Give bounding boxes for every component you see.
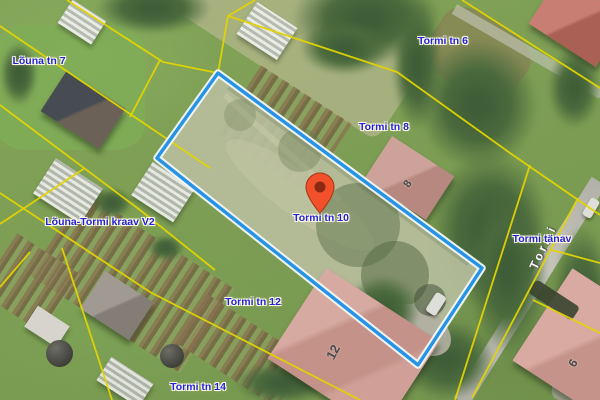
map-label-tormi-tn-14: Tormi tn 14 bbox=[170, 381, 226, 393]
map-label-tormi-tn-12: Tormi tn 12 bbox=[225, 296, 281, 308]
cadastral-overlay bbox=[0, 0, 600, 400]
map-label-tormi-tn-6: Tormi tn 6 bbox=[418, 35, 468, 47]
map-label-louna-tormi-kraav: Lõuna-Tormi kraav V2 bbox=[45, 216, 155, 228]
map-label-tormi-tanav: Tormi tänav bbox=[513, 233, 572, 245]
location-marker-pin[interactable] bbox=[304, 172, 336, 216]
aerial-map-canvas[interactable]: Tormi 8 12 6 Lõuna tn 7 Tormi tn 6 Tormi… bbox=[0, 0, 600, 400]
map-label-louna-tn-7: Lõuna tn 7 bbox=[12, 55, 65, 67]
map-label-tormi-tn-8: Tormi tn 8 bbox=[359, 121, 409, 133]
